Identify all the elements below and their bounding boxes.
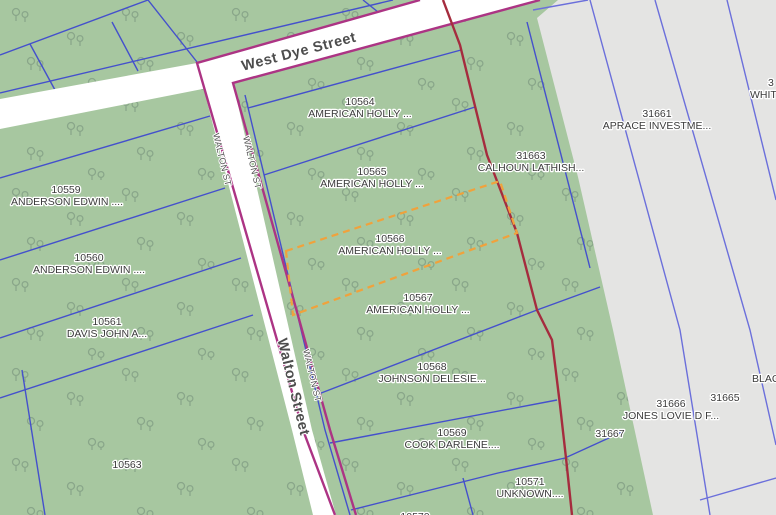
parcel-label-31667: 31667 xyxy=(595,428,624,440)
svg-text:10566: 10566 xyxy=(375,233,404,245)
svg-text:COOK DARLENE....: COOK DARLENE.... xyxy=(404,439,499,451)
svg-text:10565: 10565 xyxy=(357,166,386,178)
svg-text:31666: 31666 xyxy=(656,398,685,410)
svg-text:UNKNOWN....: UNKNOWN.... xyxy=(496,488,563,500)
svg-text:10567: 10567 xyxy=(403,292,432,304)
svg-text:31663: 31663 xyxy=(516,150,545,162)
svg-text:31661: 31661 xyxy=(642,108,671,120)
svg-text:DAVIS JOHN A...: DAVIS JOHN A... xyxy=(67,328,147,340)
svg-text:JONES LOVIE D F...: JONES LOVIE D F... xyxy=(623,410,719,422)
svg-text:31667: 31667 xyxy=(595,428,624,440)
parcel-label-10570: 10570 xyxy=(400,511,429,515)
parcel-label-31665: 31665 xyxy=(710,392,739,404)
map-viewport: West Dye Street Walton Street WALTON ST … xyxy=(0,0,776,515)
parcel-label-blac-partial: BLAC xyxy=(752,373,776,385)
svg-text:WHITT: WHITT xyxy=(750,89,776,101)
svg-text:3: 3 xyxy=(768,77,774,89)
svg-text:10571: 10571 xyxy=(515,476,544,488)
svg-text:ANDERSON EDWIN ....: ANDERSON EDWIN .... xyxy=(11,196,123,208)
svg-text:AMERICAN HOLLY ...: AMERICAN HOLLY ... xyxy=(338,245,441,257)
svg-text:APRACE INVESTME...: APRACE INVESTME... xyxy=(603,120,712,132)
svg-text:10561: 10561 xyxy=(92,316,121,328)
svg-text:10570: 10570 xyxy=(400,511,429,515)
svg-text:BLAC: BLAC xyxy=(752,373,776,385)
map-canvas[interactable]: West Dye Street Walton Street WALTON ST … xyxy=(0,0,776,515)
svg-text:AMERICAN HOLLY ...: AMERICAN HOLLY ... xyxy=(308,108,411,120)
svg-text:JOHNSON DELESIE...: JOHNSON DELESIE... xyxy=(378,373,485,385)
svg-text:AMERICAN HOLLY ...: AMERICAN HOLLY ... xyxy=(320,178,423,190)
svg-text:10563: 10563 xyxy=(112,459,141,471)
svg-text:10568: 10568 xyxy=(417,361,446,373)
svg-text:AMERICAN HOLLY ...: AMERICAN HOLLY ... xyxy=(366,304,469,316)
svg-text:10564: 10564 xyxy=(345,96,374,108)
svg-text:ANDERSON EDWIN ....: ANDERSON EDWIN .... xyxy=(33,264,145,276)
svg-text:10569: 10569 xyxy=(437,427,466,439)
svg-text:10560: 10560 xyxy=(74,252,103,264)
svg-text:31665: 31665 xyxy=(710,392,739,404)
svg-text:CALHOUN LATHISH...: CALHOUN LATHISH... xyxy=(478,162,585,174)
parcel-label-10563: 10563 xyxy=(112,459,141,471)
svg-text:10559: 10559 xyxy=(51,184,80,196)
